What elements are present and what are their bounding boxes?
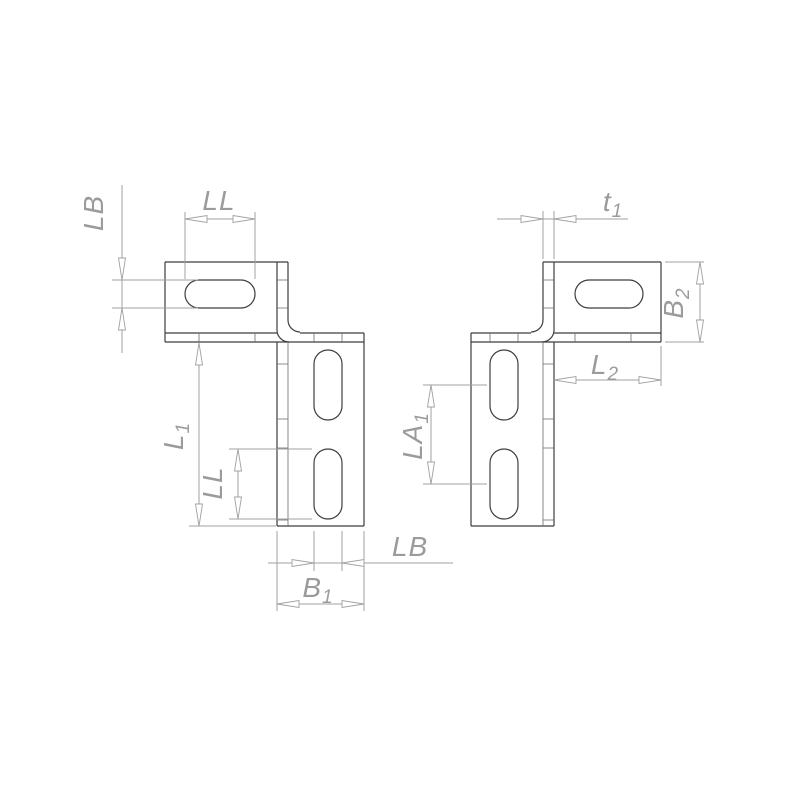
ll-side-ext-lines bbox=[229, 449, 312, 519]
b2-arrow-up bbox=[697, 262, 704, 284]
label-lb-top: LB bbox=[78, 195, 109, 231]
ll-side-arrow-up bbox=[235, 449, 242, 471]
label-b2: B2 bbox=[658, 287, 694, 318]
left-leg-slot-upper bbox=[314, 350, 342, 420]
la1-arrow-up bbox=[428, 385, 435, 407]
ll-top-arrow-left bbox=[185, 216, 207, 223]
t1-ext-lines bbox=[543, 211, 554, 259]
right-bend-outer-fillet bbox=[542, 330, 554, 342]
lb-bottom-arrow-left bbox=[342, 560, 364, 567]
left-strip-tick bbox=[199, 333, 342, 342]
t1-arrow-left bbox=[554, 216, 576, 223]
left-leg-slot-lower bbox=[314, 449, 342, 519]
right-bracket-part bbox=[471, 262, 661, 526]
right-leg-tick bbox=[543, 364, 554, 520]
label-l2: L2 bbox=[591, 349, 619, 385]
l1-arrow-up bbox=[196, 343, 203, 365]
label-la1: LA1 bbox=[397, 412, 433, 460]
b1-arrow-left bbox=[277, 601, 299, 608]
l1-arrow-down bbox=[196, 504, 203, 526]
l2-arrow-right bbox=[639, 377, 661, 384]
label-ll-side: LL bbox=[197, 466, 228, 499]
label-t1: t1 bbox=[603, 186, 623, 222]
ll-side-arrow-down bbox=[235, 497, 242, 519]
right-bend-inner-fillet bbox=[531, 320, 543, 332]
ll-top-arrow-right bbox=[233, 216, 255, 223]
left-leg-tick bbox=[277, 364, 288, 520]
left-bend-inner-fillet bbox=[288, 320, 300, 332]
right-strip-tick bbox=[490, 333, 631, 342]
lb-bottom-ext-lines bbox=[314, 531, 342, 571]
lb-bottom-arrow-right bbox=[292, 560, 314, 567]
left-bend-outer-fillet bbox=[277, 330, 289, 342]
right-leg-slot-lower bbox=[490, 449, 518, 519]
b1-arrow-right bbox=[342, 601, 364, 608]
right-leg-slot-upper bbox=[490, 350, 518, 420]
left-pair-tick bbox=[277, 280, 288, 308]
right-flange-slot bbox=[575, 280, 643, 308]
lb-top-arrow-down bbox=[119, 258, 126, 280]
b2-arrow-down bbox=[697, 320, 704, 342]
right-bracket-thin-lines bbox=[490, 280, 631, 526]
t1-arrow-right bbox=[521, 216, 543, 223]
label-ll-top: LL bbox=[202, 185, 235, 216]
left-bracket-part bbox=[165, 262, 364, 526]
dimension-labels: LB LL L1 LL B1 LB t1 B2 L2 LA1 bbox=[78, 185, 694, 608]
la1-arrow-down bbox=[428, 462, 435, 484]
ll-top-ext-lines bbox=[185, 212, 255, 279]
label-l1: L1 bbox=[158, 422, 194, 450]
left-flange-slot bbox=[185, 280, 255, 308]
right-pair-tick bbox=[543, 280, 554, 308]
l2-arrow-left bbox=[554, 377, 576, 384]
technical-drawing: LB LL L1 LL B1 LB t1 B2 L2 LA1 bbox=[0, 0, 800, 800]
label-b1: B1 bbox=[302, 572, 333, 608]
lb-top-arrow-up bbox=[119, 308, 126, 330]
label-lb-bottom: LB bbox=[392, 531, 428, 562]
